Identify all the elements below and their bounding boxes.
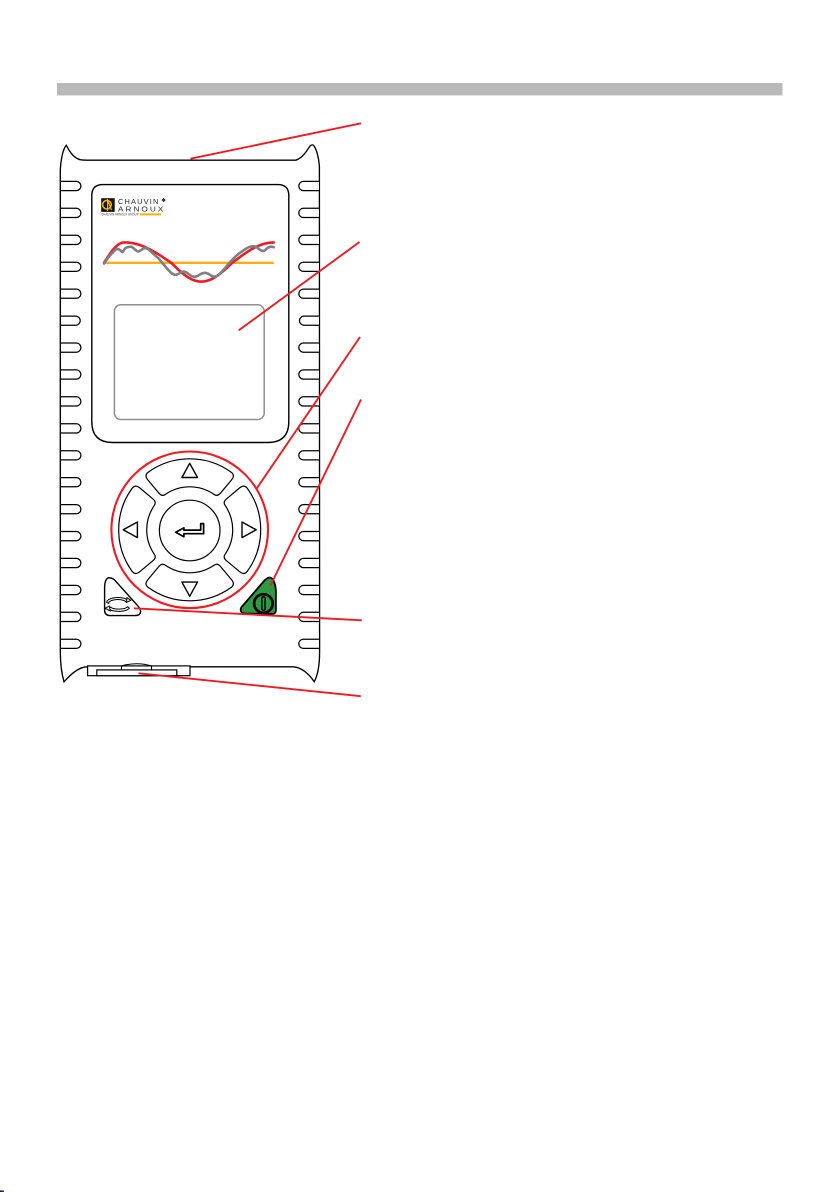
svg-text:CHAUVIN ARNOUX GROUP: CHAUVIN ARNOUX GROUP (101, 213, 139, 217)
